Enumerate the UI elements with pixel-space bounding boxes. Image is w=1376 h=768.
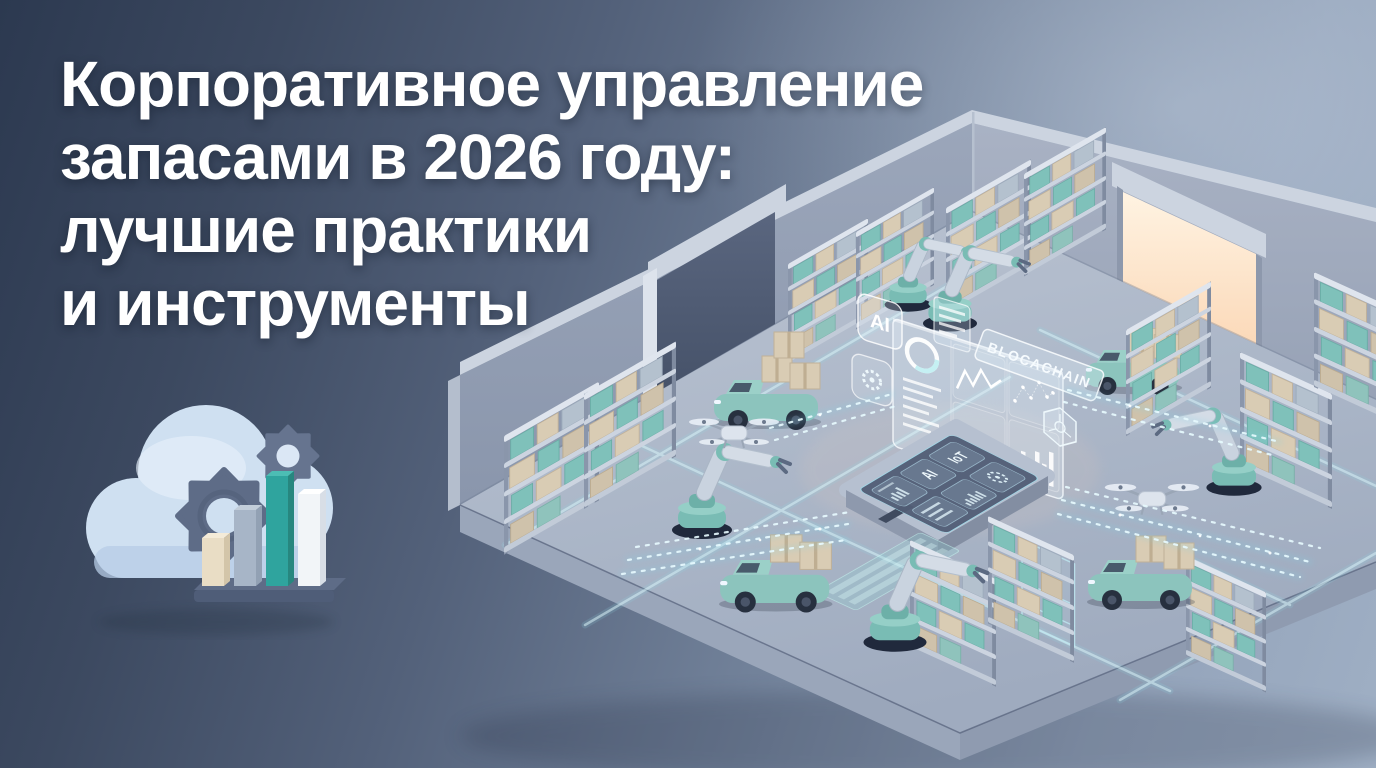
bar-white	[298, 489, 326, 586]
page-title: Корпоративное управление запасами в 2026…	[60, 48, 1040, 340]
bar-beige	[202, 533, 230, 586]
title-line-2: запасами в 2026 году:	[60, 121, 1040, 194]
title-line-4: и инструменты	[60, 267, 1040, 340]
cloud-analytics-icon	[66, 368, 348, 640]
banner: AI BLOCACHAIN	[0, 0, 1376, 768]
bar-gray	[234, 505, 262, 586]
title-line-3: лучшие практики	[60, 194, 1040, 267]
title-line-1: Корпоративное управление	[60, 48, 1040, 121]
bar-teal	[266, 471, 294, 586]
